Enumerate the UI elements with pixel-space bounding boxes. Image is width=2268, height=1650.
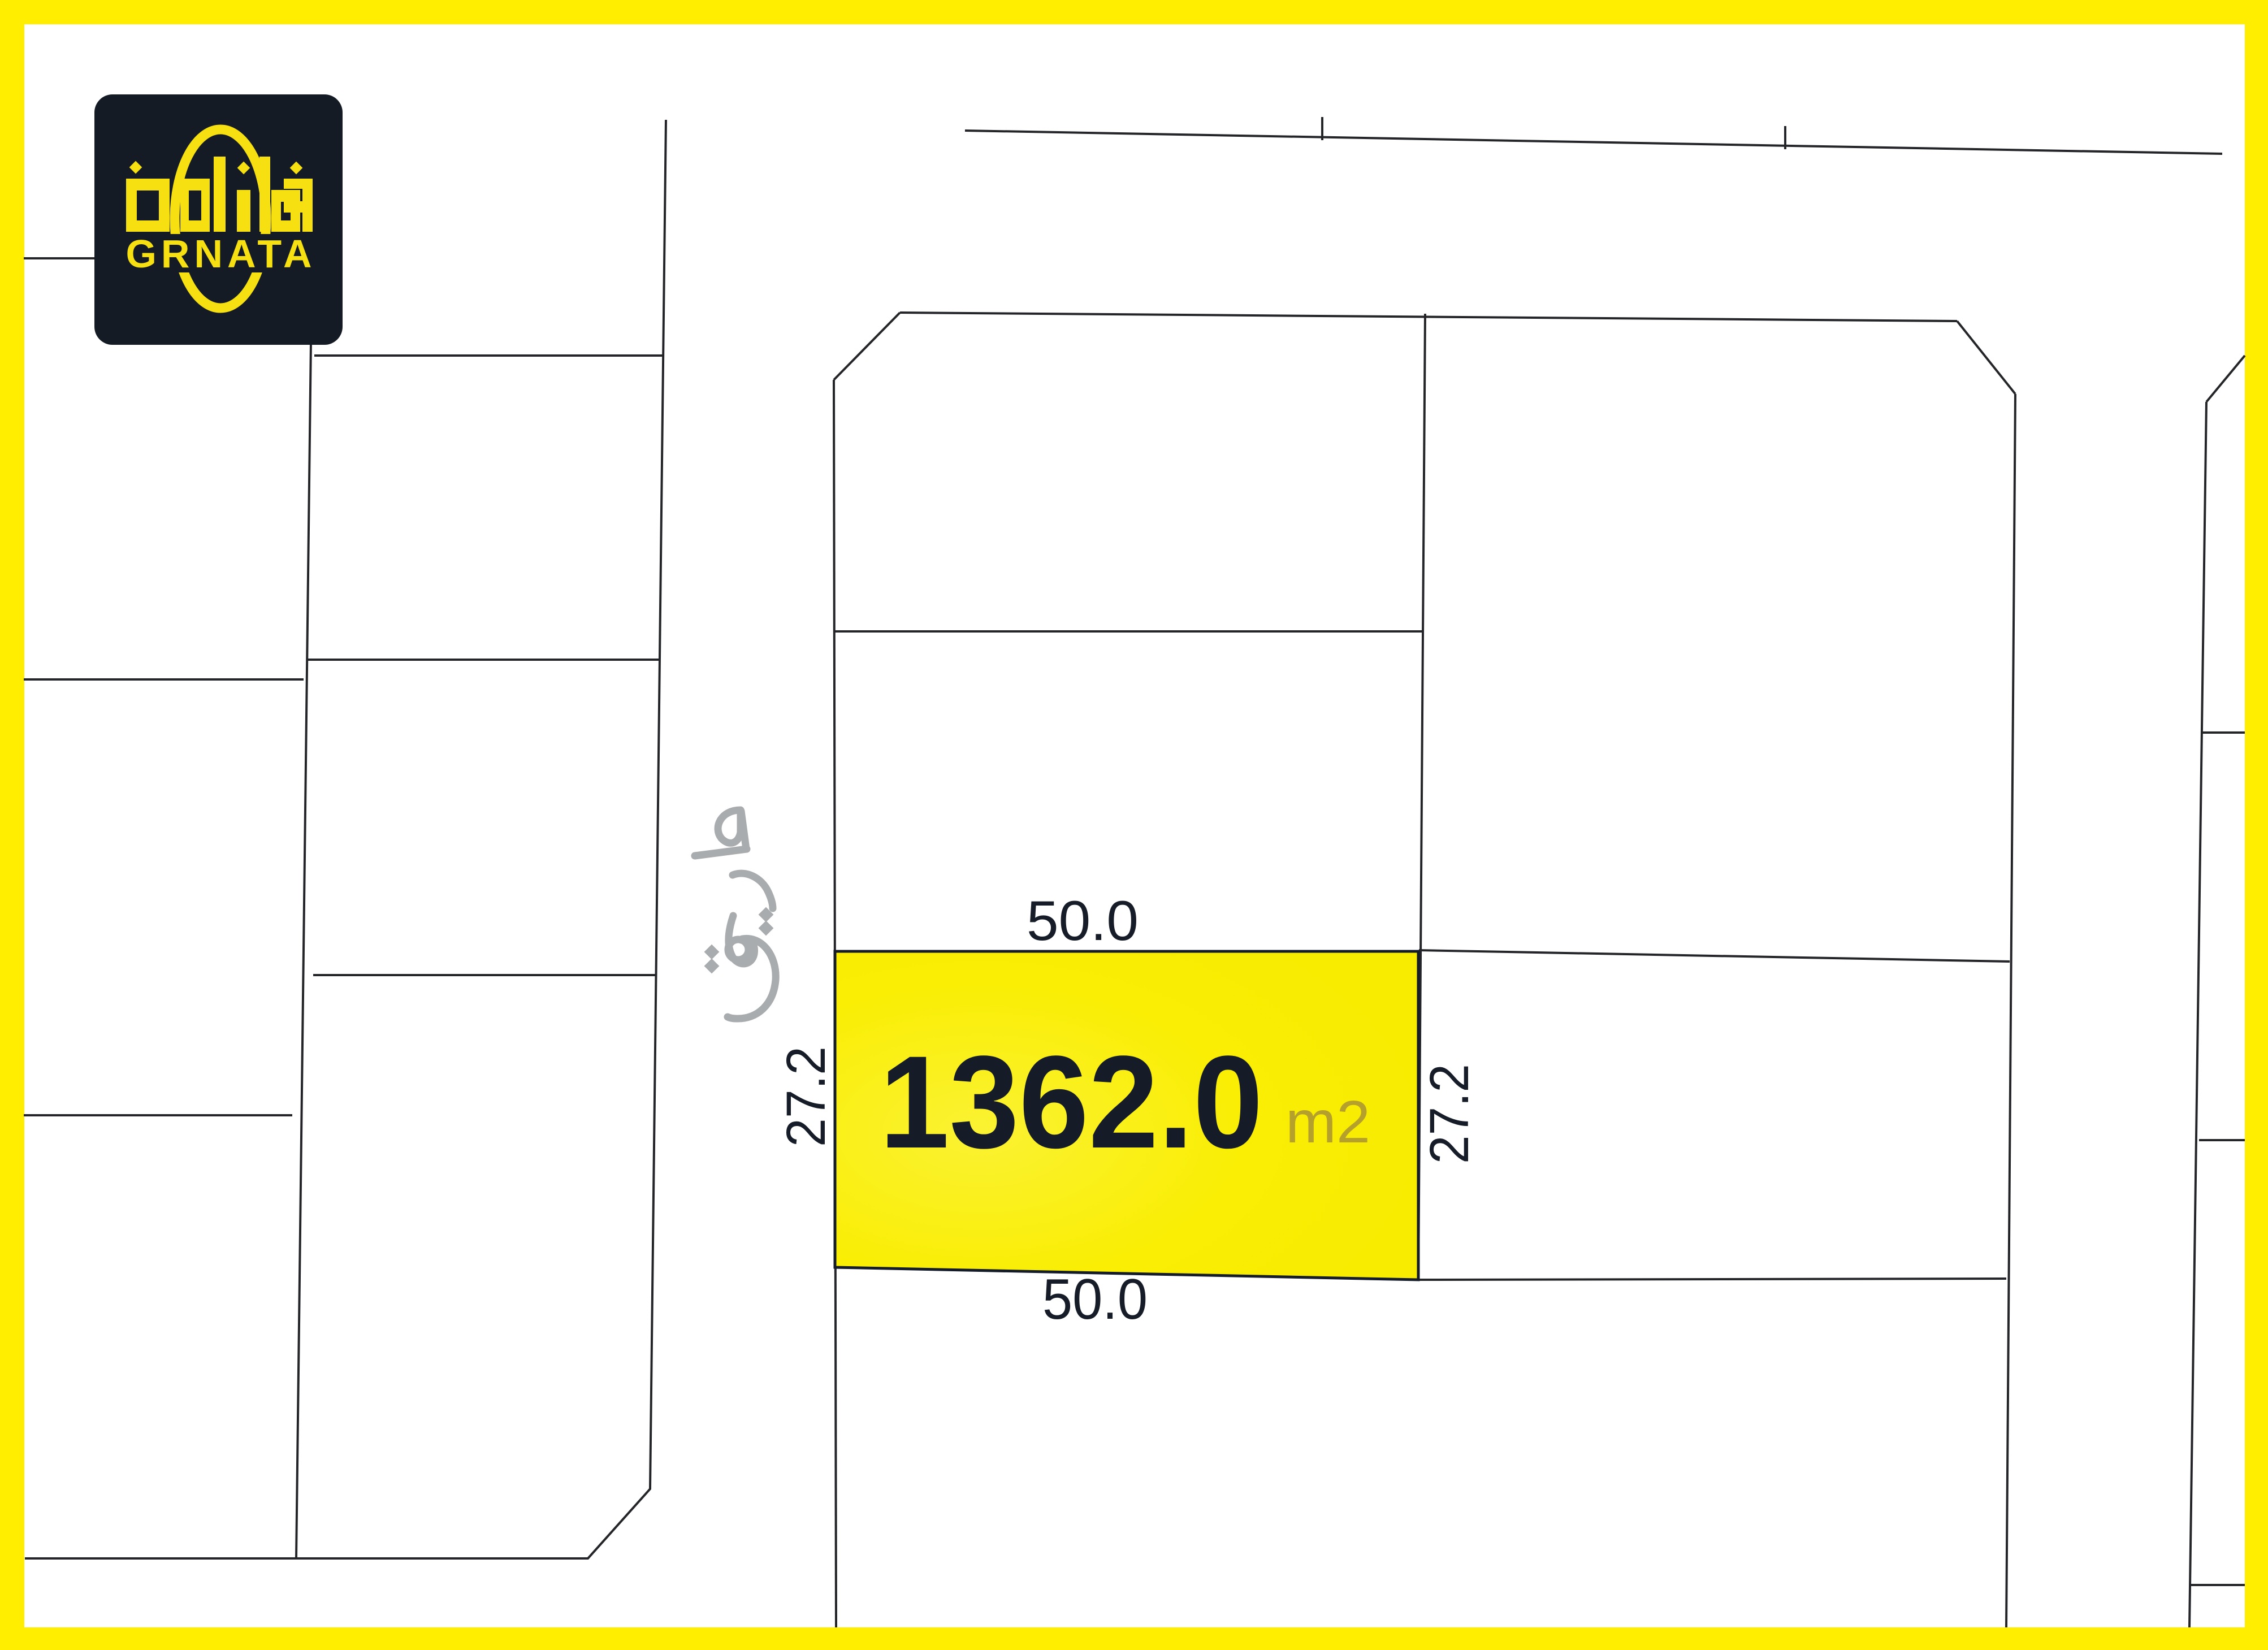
svg-text:50.0: 50.0 bbox=[1027, 889, 1139, 952]
svg-text:1362.0: 1362.0 bbox=[880, 1029, 1263, 1176]
svg-text:m2: m2 bbox=[1286, 1089, 1370, 1155]
svg-text:GRNATA: GRNATA bbox=[125, 232, 316, 276]
svg-text:50.0: 50.0 bbox=[1042, 1268, 1148, 1331]
svg-text:27.2: 27.2 bbox=[775, 1046, 837, 1147]
svg-text:27.2: 27.2 bbox=[1418, 1064, 1480, 1164]
